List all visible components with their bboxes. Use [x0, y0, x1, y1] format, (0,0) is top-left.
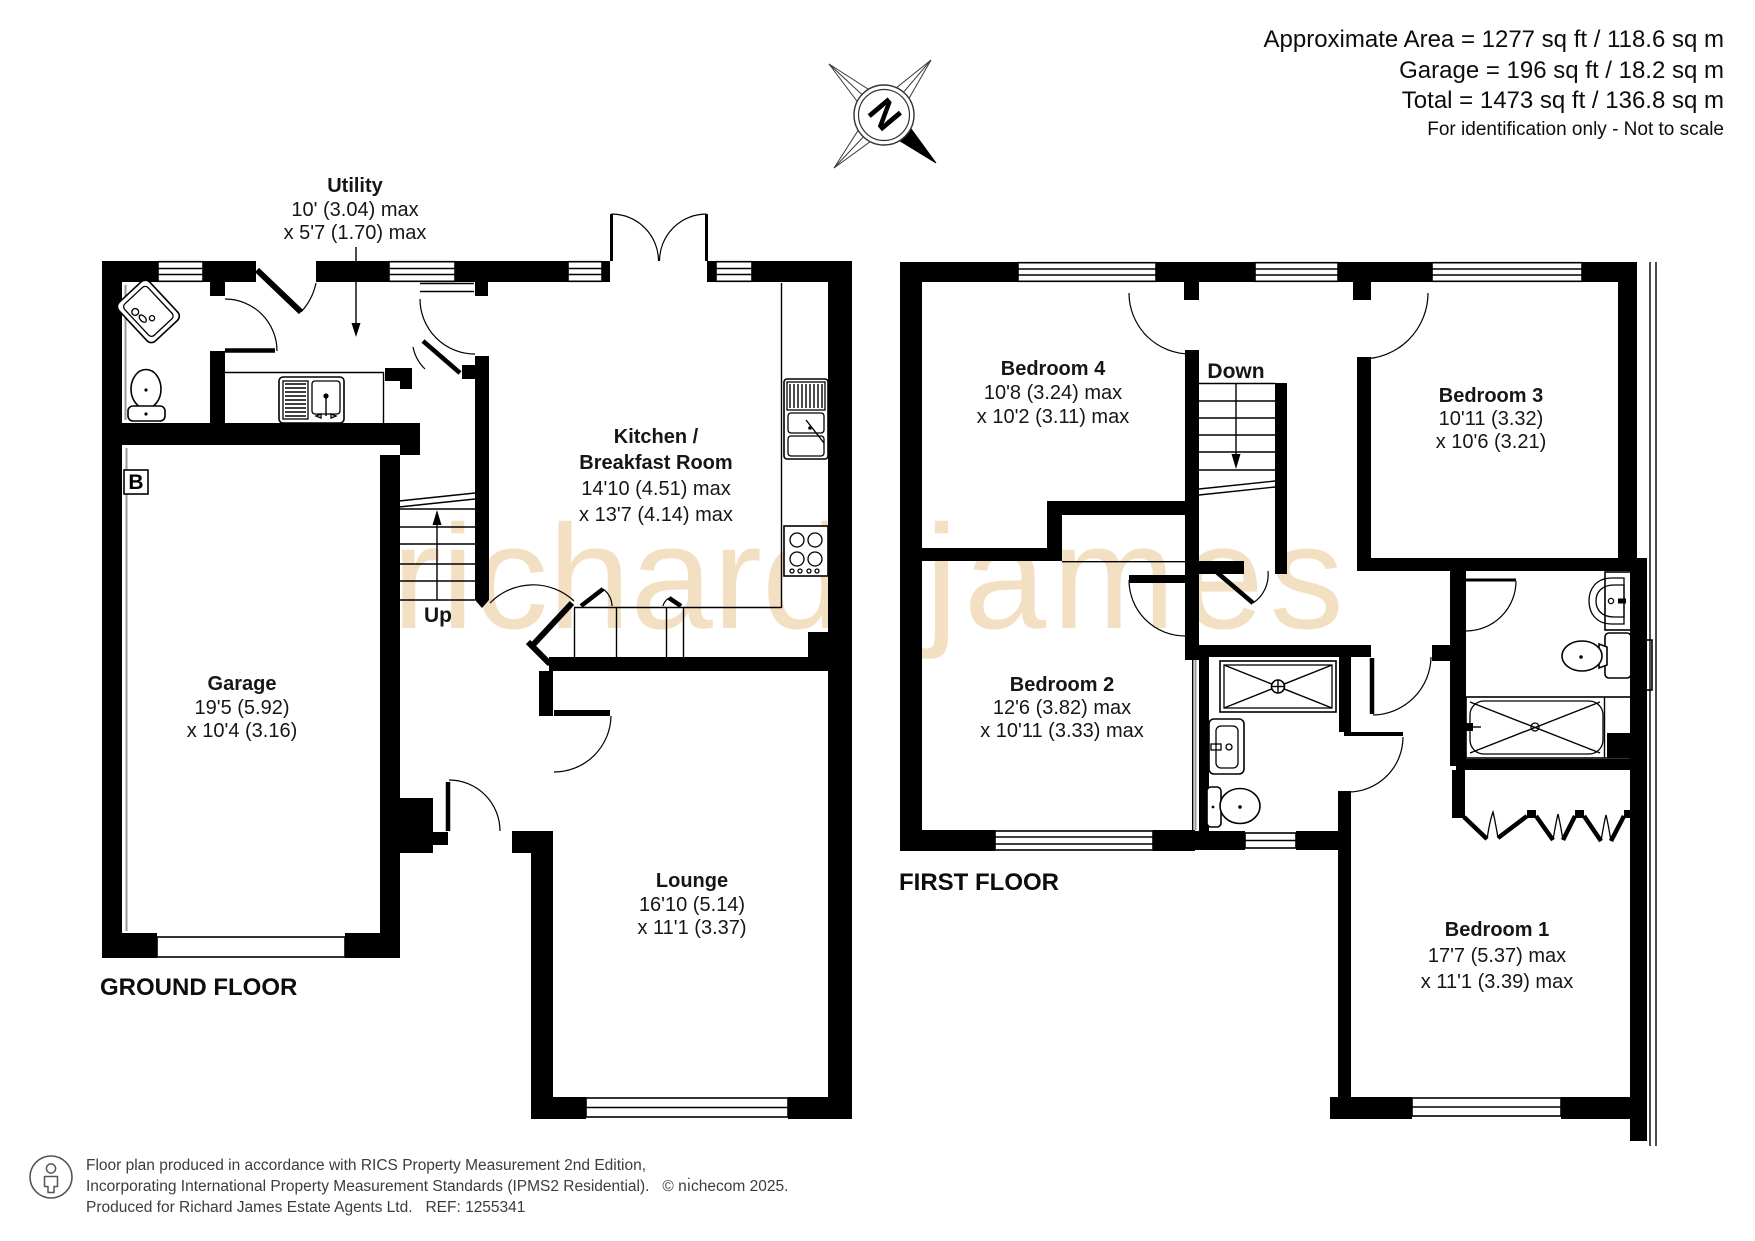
svg-text:12'6 (3.82) max: 12'6 (3.82) max: [993, 697, 1131, 719]
svg-text:14'10 (4.51) max: 14'10 (4.51) max: [581, 478, 730, 500]
svg-text:GROUND FLOOR: GROUND FLOOR: [100, 974, 297, 1001]
svg-text:x 5'7 (1.70) max: x 5'7 (1.70) max: [284, 222, 427, 244]
svg-text:B: B: [128, 471, 143, 494]
svg-text:x 10'6 (3.21): x 10'6 (3.21): [1436, 431, 1547, 453]
svg-text:x 13'7 (4.14) max: x 13'7 (4.14) max: [579, 504, 733, 526]
svg-text:x 11'1 (3.37): x 11'1 (3.37): [637, 917, 746, 939]
svg-text:Floor plan produced in accorda: Floor plan produced in accordance with R…: [86, 1157, 646, 1174]
svg-text:FIRST FLOOR: FIRST FLOOR: [899, 869, 1059, 896]
svg-text:Breakfast Room: Breakfast Room: [579, 452, 732, 474]
svg-text:10'11 (3.32): 10'11 (3.32): [1439, 408, 1544, 430]
svg-text:Down: Down: [1207, 360, 1264, 383]
svg-text:Kitchen /: Kitchen /: [614, 426, 699, 448]
svg-text:x 11'1 (3.39) max: x 11'1 (3.39) max: [1421, 971, 1573, 993]
svg-text:Bedroom 4: Bedroom 4: [1001, 358, 1106, 380]
svg-text:17'7 (5.37) max: 17'7 (5.37) max: [1428, 945, 1566, 967]
svg-text:Bedroom 1: Bedroom 1: [1445, 919, 1549, 941]
svg-text:Bedroom 3: Bedroom 3: [1439, 385, 1543, 407]
svg-text:19'5 (5.92): 19'5 (5.92): [195, 697, 290, 719]
svg-text:x 10'2 (3.11) max: x 10'2 (3.11) max: [977, 406, 1129, 428]
svg-text:Utility: Utility: [327, 175, 383, 197]
svg-text:16'10 (5.14): 16'10 (5.14): [639, 894, 745, 916]
svg-text:10' (3.04) max: 10' (3.04) max: [291, 199, 418, 221]
svg-text:Incorporating International Pr: Incorporating International Property Mea…: [86, 1178, 788, 1195]
svg-text:10'8 (3.24) max: 10'8 (3.24) max: [984, 382, 1122, 404]
svg-text:x 10'11 (3.33) max: x 10'11 (3.33) max: [980, 720, 1144, 742]
svg-text:Total = 1473 sq ft / 136.8 sq: Total = 1473 sq ft / 136.8 sq m: [1402, 87, 1724, 114]
svg-text:x 10'4 (3.16): x 10'4 (3.16): [187, 720, 298, 742]
svg-text:For identification only - Not: For identification only - Not to scale: [1427, 119, 1724, 140]
svg-text:Garage = 196 sq ft / 18.2 sq m: Garage = 196 sq ft / 18.2 sq m: [1399, 57, 1724, 84]
svg-text:Produced for Richard James Est: Produced for Richard James Estate Agents…: [86, 1199, 525, 1216]
svg-text:Lounge: Lounge: [656, 870, 728, 892]
svg-text:Garage: Garage: [208, 673, 277, 695]
svg-text:Up: Up: [424, 604, 452, 627]
svg-text:Bedroom 2: Bedroom 2: [1010, 674, 1114, 696]
svg-text:Approximate Area = 1277 sq ft: Approximate Area = 1277 sq ft / 118.6 sq…: [1264, 26, 1725, 53]
